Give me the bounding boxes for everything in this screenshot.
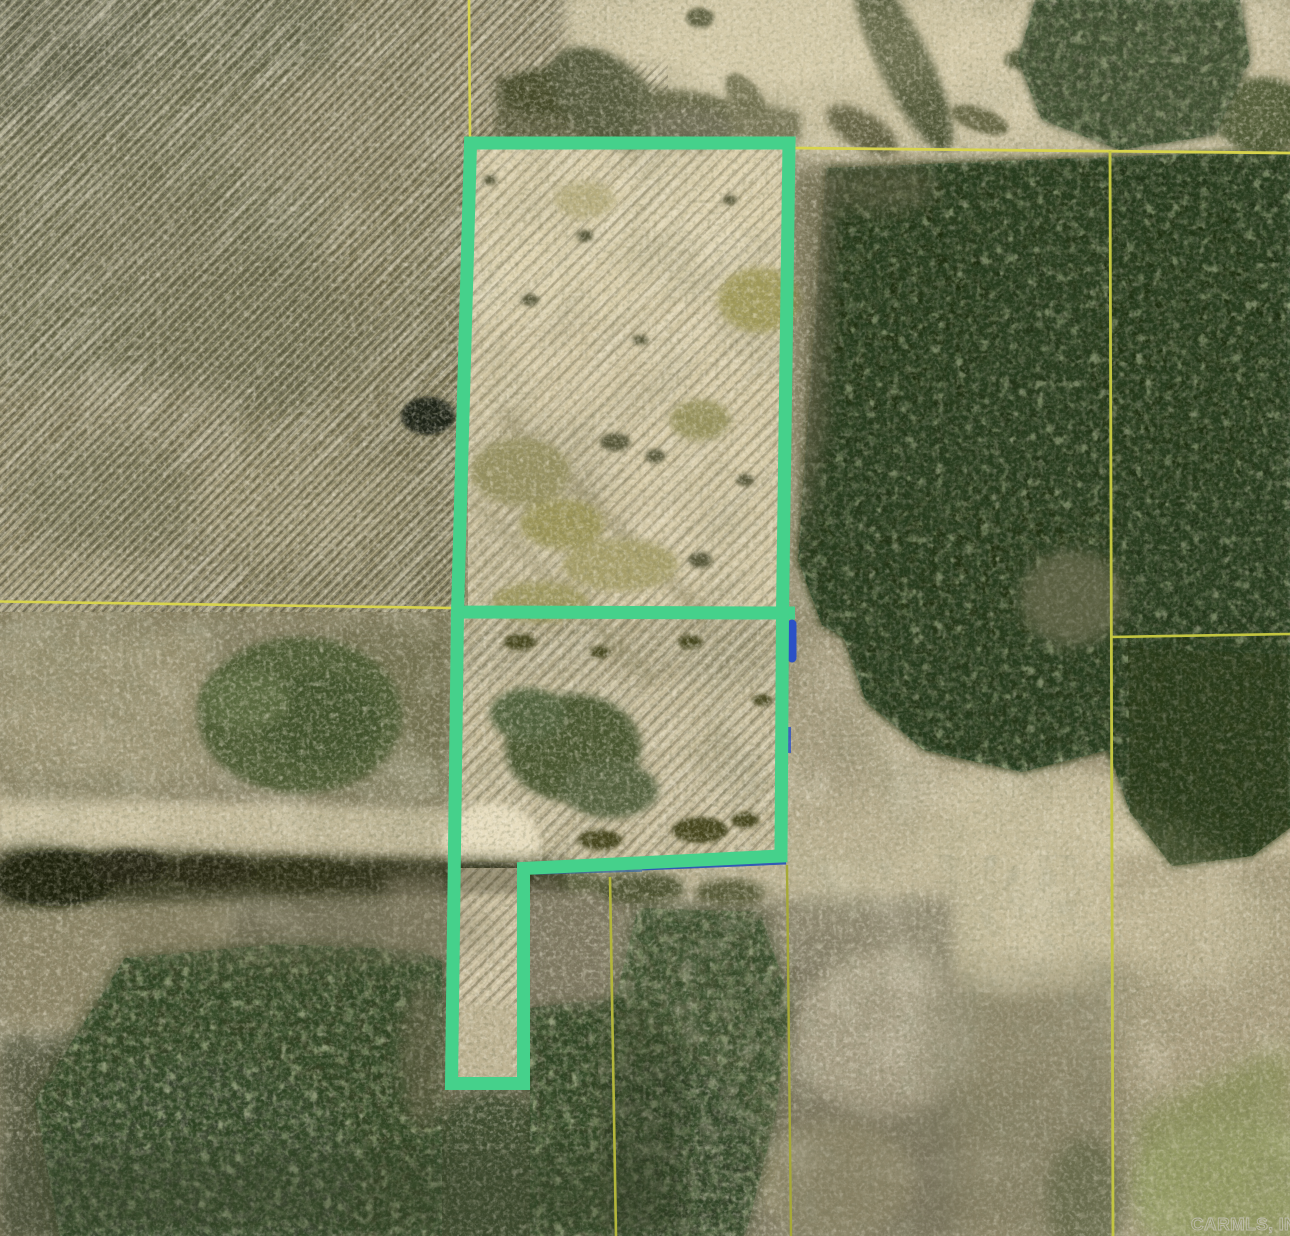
- svg-text:CARMLS, INC: CARMLS, INC: [1191, 1214, 1290, 1234]
